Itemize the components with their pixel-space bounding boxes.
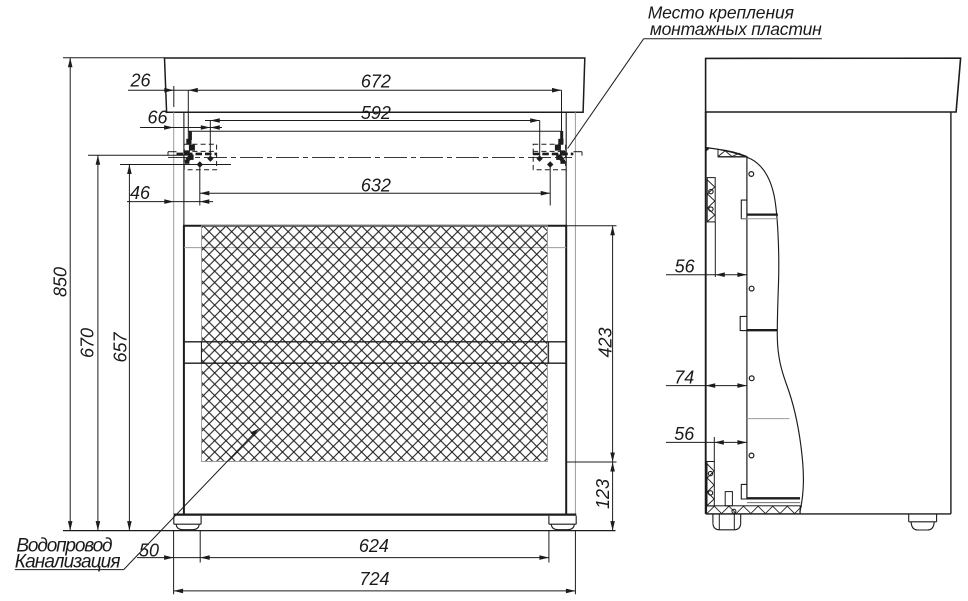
svg-text:624: 624 (359, 536, 389, 556)
svg-text:724: 724 (359, 569, 389, 589)
svg-text:592: 592 (361, 103, 391, 123)
svg-text:66: 66 (147, 107, 168, 127)
svg-text:672: 672 (361, 72, 391, 92)
svg-text:632: 632 (361, 175, 391, 195)
svg-text:74: 74 (674, 367, 694, 387)
svg-text:монтажных пластин: монтажных пластин (650, 19, 822, 39)
svg-text:657: 657 (111, 331, 131, 362)
svg-text:423: 423 (596, 327, 616, 357)
svg-text:46: 46 (130, 183, 151, 203)
svg-text:56: 56 (675, 257, 696, 277)
svg-text:123: 123 (593, 479, 613, 509)
svg-text:670: 670 (78, 328, 98, 358)
svg-text:850: 850 (51, 267, 71, 297)
svg-text:26: 26 (129, 71, 151, 91)
svg-text:56: 56 (674, 424, 695, 444)
